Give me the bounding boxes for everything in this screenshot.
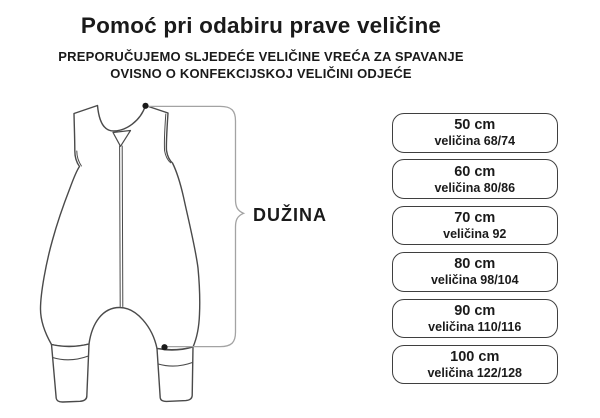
right-foot-cuff: [157, 347, 193, 401]
size-length: 50 cm: [454, 117, 495, 134]
size-length: 70 cm: [454, 210, 495, 227]
size-option-90cm: 90 cm veličina 110/116: [392, 299, 559, 339]
size-option-100cm: 100 cm veličina 122/128: [392, 345, 559, 385]
size-length: 80 cm: [454, 256, 495, 273]
size-length: 90 cm: [454, 303, 495, 320]
size-clothing-label: veličina 98/104: [431, 273, 519, 288]
size-clothing-label: veličina 68/74: [434, 134, 515, 149]
size-clothing-label: veličina 80/86: [434, 181, 515, 196]
length-label: DUŽINA: [253, 205, 327, 226]
left-foot-cuff: [52, 344, 90, 402]
measure-dot-bottom: [161, 344, 167, 350]
sleeping-bag-drawing: [41, 106, 200, 403]
size-clothing-label: veličina 122/128: [427, 366, 522, 381]
size-clothing-label: veličina 110/116: [428, 320, 521, 335]
size-option-60cm: 60 cm veličina 80/86: [392, 159, 559, 199]
size-option-80cm: 80 cm veličina 98/104: [392, 252, 559, 292]
size-option-50cm: 50 cm veličina 68/74: [392, 113, 559, 153]
measure-dot-top: [142, 103, 148, 109]
size-length: 100 cm: [450, 349, 499, 366]
size-list: 50 cm veličina 68/74 60 cm veličina 80/8…: [392, 113, 559, 384]
size-option-70cm: 70 cm veličina 92: [392, 206, 559, 246]
size-length: 60 cm: [454, 164, 495, 181]
size-clothing-label: veličina 92: [443, 227, 506, 242]
size-guide-infographic: Pomoć pri odabiru prave veličine PREPORU…: [0, 0, 600, 418]
